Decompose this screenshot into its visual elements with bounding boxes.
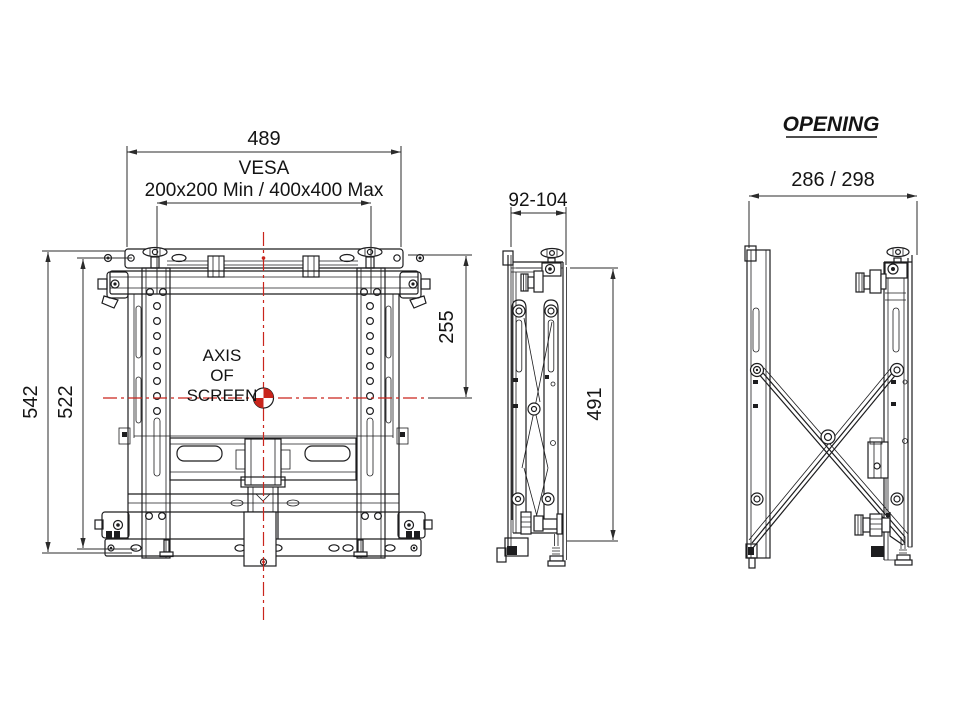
- open-wall-rail: [745, 246, 770, 568]
- front-view: AXIS OF SCREEN 489 VESA 200x200 Min / 40…: [20, 128, 472, 620]
- front-right-knob: [358, 248, 382, 269]
- front-dimensions: 489 VESA 200x200 Min / 400x400 Max 255 5…: [20, 128, 472, 553]
- front-right-rail: [354, 268, 385, 558]
- dim-depth-range: 92-104: [508, 190, 568, 211]
- vesa-title: VESA: [239, 158, 290, 179]
- open-lock-bracket: [868, 438, 888, 513]
- front-centerlines: [103, 232, 424, 620]
- axis-of-screen-label: AXIS OF SCREEN: [187, 346, 258, 405]
- dim-inner-height: 522: [55, 385, 77, 418]
- front-left-knob: [143, 248, 167, 269]
- closed-top-hardware: [521, 249, 563, 293]
- axis-label-line2: OF: [210, 366, 234, 385]
- side-view-open: OPENING 286 / 298: [745, 113, 917, 568]
- technical-drawing-page: AXIS OF SCREEN 489 VESA 200x200 Min / 40…: [0, 0, 960, 720]
- opening-title: OPENING: [783, 113, 880, 136]
- wall-mount-drawing: AXIS OF SCREEN 489 VESA 200x200 Min / 40…: [0, 0, 960, 720]
- axis-label-line3: SCREEN: [187, 386, 258, 405]
- dim-closed-height: 491: [584, 387, 606, 420]
- dim-opening-depth: 286 / 298: [791, 169, 874, 191]
- axis-label-line1: AXIS: [203, 346, 242, 365]
- side-view-closed: 92-104 491: [497, 190, 618, 566]
- open-top-hardware: [856, 248, 909, 301]
- vesa-range: 200x200 Min / 400x400 Max: [145, 180, 384, 201]
- open-screen-rail: [884, 255, 912, 560]
- dim-axis-offset: 255: [436, 310, 458, 343]
- front-left-rail: [142, 268, 173, 558]
- dim-overall-height: 542: [20, 385, 42, 418]
- dim-overall-width: 489: [247, 128, 280, 150]
- open-dimensions: 286 / 298: [749, 169, 917, 255]
